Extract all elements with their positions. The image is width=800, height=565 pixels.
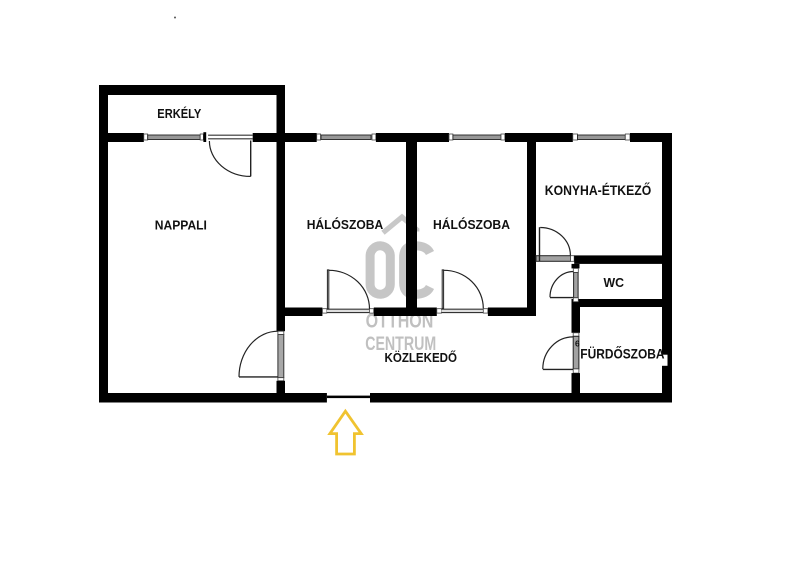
svg-text:NAPPALI: NAPPALI xyxy=(155,218,207,232)
svg-text:6: 6 xyxy=(575,338,580,348)
svg-text:FÜRDŐSZOBA: FÜRDŐSZOBA xyxy=(580,346,664,361)
svg-text:ERKÉLY: ERKÉLY xyxy=(157,106,202,121)
svg-text:KÖZLEKEDŐ: KÖZLEKEDŐ xyxy=(385,350,458,365)
svg-text:HÁLÓSZOBA: HÁLÓSZOBA xyxy=(307,217,384,232)
svg-text:HÁLÓSZOBA: HÁLÓSZOBA xyxy=(433,217,510,232)
svg-text:WC: WC xyxy=(604,276,625,290)
svg-text:KONYHA-ÉTKEZŐ: KONYHA-ÉTKEZŐ xyxy=(545,181,651,199)
